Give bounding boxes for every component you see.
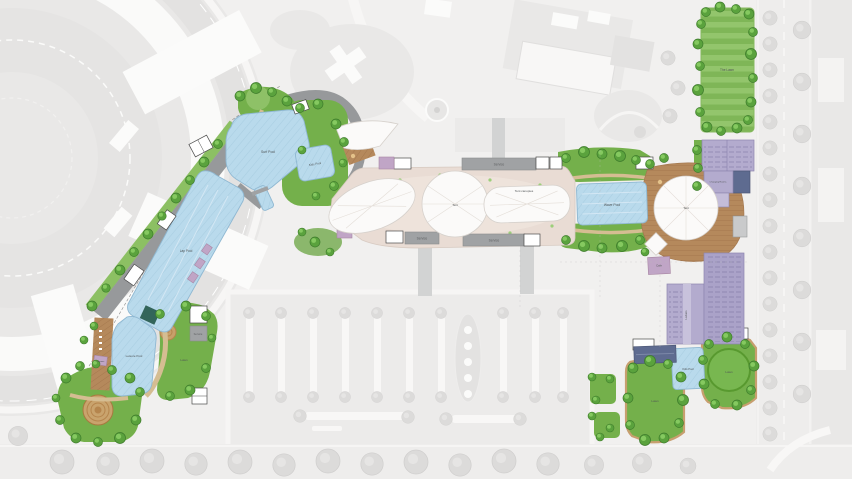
lawn-label-3: Lawn: [180, 358, 188, 362]
lap-pool-label: Lap Pool: [180, 249, 193, 253]
dome-label: Tent: [683, 206, 689, 210]
cabanas-label: Cabanas: [96, 361, 106, 363]
splash-pool-label: Kids Pool: [682, 367, 694, 371]
cafe-label: Cafe: [656, 264, 662, 268]
service-label-north: Service: [494, 163, 505, 167]
lockers-label: Lockers: [684, 310, 688, 320]
wave-pool-label: Wave Pool: [604, 203, 621, 207]
site-plan: Surf Pool Kids Pool Lap Pool Leisure Poo…: [0, 0, 852, 479]
the-lawn-label: The Lawn: [720, 68, 734, 72]
service-label-west: Service: [194, 332, 203, 336]
tent-canopies-label: Tent canopies: [515, 189, 534, 193]
changing-rooms-label: Changing Rooms: [710, 182, 728, 184]
lawn-label-2: Lawn: [725, 370, 733, 374]
tent-label: Tent: [452, 203, 458, 207]
surf-pool-label: Surf Pool: [261, 150, 275, 154]
service-label-sw: Service: [417, 237, 428, 241]
context-parking-lot: [228, 292, 592, 448]
context-road-east: [756, 0, 852, 479]
service-label-se: Service: [489, 239, 500, 243]
site-plan-canvas: Surf Pool Kids Pool Lap Pool Leisure Poo…: [0, 0, 852, 479]
lawn-label-1: Lawn: [651, 399, 659, 403]
leisure-pool-label: Leisure Pool: [126, 354, 143, 358]
